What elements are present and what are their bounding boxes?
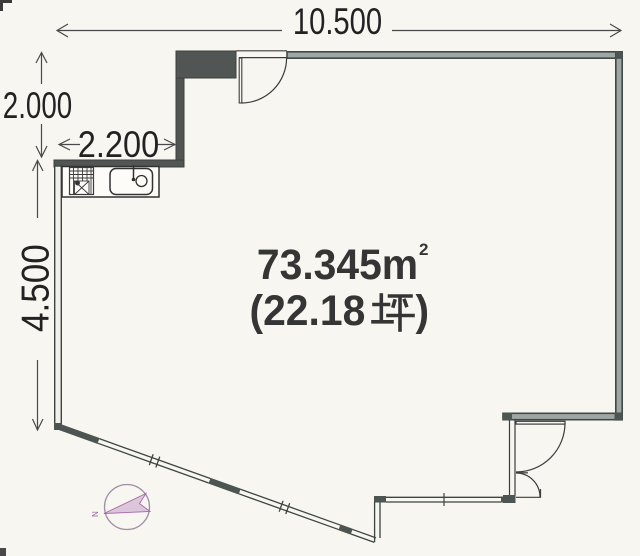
svg-text:): ) [416, 286, 430, 334]
svg-text:N: N [91, 511, 100, 517]
svg-text:2: 2 [419, 240, 428, 259]
svg-text:4.500: 4.500 [13, 244, 57, 332]
svg-text:2.200: 2.200 [78, 124, 159, 165]
svg-text:73.345m: 73.345m [257, 240, 418, 288]
svg-text:2.000: 2.000 [3, 84, 72, 126]
svg-text:(22.18: (22.18 [250, 286, 366, 334]
svg-text:10.500: 10.500 [293, 2, 382, 43]
